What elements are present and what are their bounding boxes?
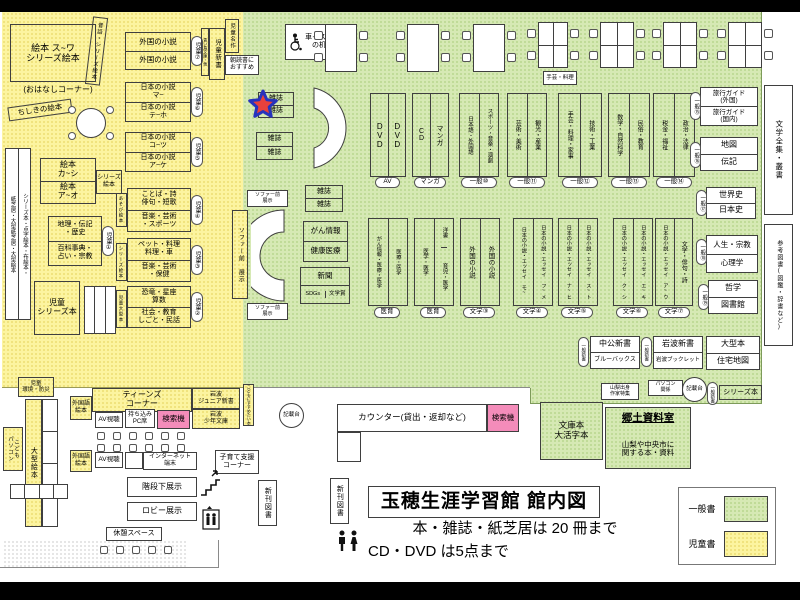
chair [717, 51, 726, 60]
shelf-row: 日本の小説 ア~ケ [126, 152, 190, 172]
chair [161, 432, 169, 440]
shelf-row: SDGs 文学賞 [301, 285, 349, 303]
shelf-kyoryu: 恐竜・星座 算数 社会・教育 しごと・民話 [127, 286, 191, 328]
shelf-bungaku-4: 日本の小説・エッセイ モ~ 日本の小説・エッセイ フ~メ [513, 218, 553, 306]
chair [129, 432, 137, 440]
chair [129, 444, 137, 452]
reading-table [407, 24, 439, 72]
shelf-row: 岩波ブックレット [654, 352, 702, 368]
label-ohanashi-corner: (おはなしコーナー) [6, 84, 110, 96]
sofa-front-display-shelf: ソファー前 展示 [232, 210, 248, 299]
chair [145, 444, 153, 452]
chair [764, 51, 773, 60]
pill-bungaku-5: 文学⑤ [561, 307, 593, 318]
shelf-bungaku-5: 日本の小説・エッセイ ナ~ヒ 日本の小説・エッセイ ス~ト [558, 218, 598, 306]
shelf-ogata-jutaku: 大型本 住宅地図 [706, 336, 760, 370]
shelf-col: 日本の小説・エッセイ ク~シ [614, 219, 633, 305]
shelf-kamishibai-tall: 紙芝居・大型紙芝居・大型絵本 シリーズ本・点字絵本・布絵本・ [5, 148, 31, 320]
chair [699, 51, 708, 60]
shelf-col: CD [413, 94, 430, 176]
shelf-col: 民俗・教育 [629, 94, 650, 176]
shelf-row: 地理・伝記 ・歴史 [49, 217, 101, 241]
shelf-jinsei-shinri: 人生・宗教 心理学 [706, 235, 758, 273]
shelf-kotoba: ことば・詩 俳句・短歌 音楽・芸術 ・スポーツ [127, 188, 191, 232]
pill-ippan-15: 一般⑮ [690, 92, 701, 120]
shelf-row: 外国の小説 [126, 51, 190, 70]
quad-table [728, 22, 762, 68]
shelf-row: ブルーバックス [591, 352, 639, 368]
shelf-bungaku-6: 日本の小説・エッセイ ク~シ 日本の小説・エッセイ エ~キ [613, 218, 653, 306]
shelf-sekaishi-nihonshi: 世界史 日本史 [706, 187, 756, 219]
bench-cell [24, 485, 38, 498]
chair [106, 106, 114, 114]
pill-jido-2: 児童② [191, 292, 203, 322]
legend-label-children: 児童書 [684, 536, 720, 552]
sofa-front-display-bottom: ソファー前 展示 [247, 303, 288, 320]
chair [717, 29, 726, 38]
shelf-col: 外国の小説 [480, 219, 500, 305]
pill-jido-5: 児童⑤ [191, 137, 203, 167]
quad-table [538, 22, 568, 68]
tag-yamanashi-sakka: 山梨出身 作家特集 [601, 383, 639, 400]
tag-pasokon-kankei: パソコン 関係 [648, 380, 683, 396]
shelf-gaikokugo-ehon: 外国語 絵本 [70, 450, 92, 472]
chair [589, 29, 598, 38]
search-machine: 検索機 [487, 404, 519, 432]
chair [652, 51, 661, 60]
chair [396, 31, 405, 40]
shelf-bungaku-3: 外国の小説 外国の小説 [460, 218, 500, 306]
shelf-dvd: DVD DVD [370, 93, 406, 177]
chair [359, 53, 368, 62]
rest-space-floor [3, 540, 187, 568]
shelf-bunkobon: 文庫本 大活字本 [540, 402, 603, 460]
shelf-row: がん情報 [304, 222, 347, 241]
wall-line [0, 567, 219, 568]
quad-table [663, 22, 697, 68]
shelf-row: 伝記 [701, 154, 757, 171]
shelf-iiku-2: 医学・医学 洋書 育児・医学 [414, 218, 454, 306]
pill-bungaku-4: 文学④ [516, 307, 548, 318]
internet-terminal: インターネット 端末 [143, 452, 197, 470]
legend-swatch-children [724, 531, 768, 557]
shelf-zasshi-2: 雑誌 雑誌 [256, 132, 293, 160]
chair [161, 444, 169, 452]
quad-table [600, 22, 634, 68]
shelf-bungaku-zenshu: 文学全集・叢書 [764, 85, 793, 215]
chair [441, 31, 450, 40]
shelf-iwanami-shonen: 岩波 少年文庫 [192, 409, 240, 429]
shelf-row: 日本の小説 マ~ [126, 83, 190, 102]
shelf-col: 文学・俳句・詩 [674, 219, 693, 305]
shelf-col: 日本の小説・エッセイ モ~ [514, 219, 533, 305]
shelf-row: 新聞 [301, 268, 349, 285]
you-are-here-star-icon [246, 88, 280, 122]
shelf-col: 日本の小説・エッセイ エ~キ [633, 219, 653, 305]
chair [441, 53, 450, 62]
shelf-col: 外国の小説 [461, 219, 480, 305]
shelf-col: 医療・医学 [388, 219, 408, 305]
elevator-icon [202, 506, 220, 530]
chair [396, 53, 405, 62]
loan-limit-note-av: CD・DVD は5点まで [368, 541, 578, 563]
shelf-row: 絵本 ア~オ [41, 181, 95, 204]
wall-line [218, 540, 219, 568]
shelf-col [105, 287, 115, 333]
chair [145, 432, 153, 440]
shelf-row: ペット・料理 料理・車 [128, 239, 190, 260]
reading-table [473, 24, 505, 72]
shelf-ippan-10: 日本語・外国語 スポーツ・音楽・演劇 [459, 93, 499, 177]
pill-bungaku-3: 文学③ [463, 307, 495, 318]
pill-ippan-17: 一般⑰ [696, 190, 707, 216]
shelf-iwanami-junior: 岩波 ジュニア新書 [192, 388, 240, 409]
chair [462, 31, 471, 40]
pill-jido-1: 児童① [102, 226, 114, 256]
kids-computer: こども パソコン [3, 427, 23, 471]
shelf-gan-kenko: がん情報 健康医療 [303, 221, 348, 262]
shelf-asadoku-osusume: 朝読書に おすすめ [225, 55, 259, 75]
shelf-col: 数学・自然科学 [609, 94, 629, 176]
shelf-col: 紙芝居・大型紙芝居・大型絵本 [6, 149, 18, 319]
chair [359, 31, 368, 40]
pill-ippan-18: 一般⑱ [696, 239, 707, 265]
chair [570, 51, 579, 60]
floor-map-screen: 絵本 ス~ワ シリーズ絵本 (おはなしコーナー) 昔話・シリーズ絵本 ちしきの絵… [0, 0, 800, 600]
counter-desk: カウンター(貸出・返却など) [337, 404, 487, 432]
writing-stand-circle: 記載台 [279, 403, 304, 428]
pill-bungaku-7: 文学⑦ [658, 307, 690, 318]
shelf-tetsugaku-toshokan: 哲学 図書館 [708, 280, 758, 314]
bench-cell [53, 485, 67, 498]
pill-jido-3: 児童③ [191, 245, 203, 275]
chair [68, 106, 76, 114]
pill-jido-4: 児童④ [191, 195, 203, 225]
shelf-cell [43, 431, 57, 463]
shelf-iiku-1: がん情報・医療・医学 医療・医学 [368, 218, 408, 306]
shelf-row: ことば・詩 俳句・短歌 [128, 189, 190, 210]
shelf-row: 旅行ガイド (外国) [701, 88, 757, 106]
shelf-label: 絵本 ス~ワ シリーズ絵本 [26, 43, 80, 63]
chair [764, 29, 773, 38]
tag-jido-ogata: 児童大型本 [116, 290, 127, 328]
chair [106, 132, 114, 140]
shelf-jido-shinsho: 児童新書 [209, 28, 225, 80]
shelf-bungaku-7: 日本の小説・エッセイ ア~ウ 文学・俳句・詩 [655, 218, 693, 306]
shelf-col: 芸術・美術 [508, 94, 527, 176]
shelf-row: 心理学 [707, 254, 757, 273]
shelf-col [85, 287, 94, 333]
loan-limit-note-books: 本・雑誌・紙芝居は 20 冊まで [380, 518, 650, 540]
shelf-col: シリーズ本・点字絵本・布絵本・ [18, 149, 31, 319]
shelf-ehon-ka-a: 絵本 カ~シ 絵本 ア~オ [40, 158, 96, 204]
pill-ippan-10: 一般⑩ [461, 177, 497, 188]
shelf-col: 技術・工業 [580, 94, 602, 176]
shelf-row: 日本の小説 コ~ツ [126, 133, 190, 152]
shelf-jido-nihon-ko: 日本の小説 コ~ツ 日本の小説 ア~ケ [125, 132, 191, 172]
shelf-col: 日本の小説・エッセイ ナ~ヒ [559, 219, 578, 305]
chair [97, 444, 105, 452]
curved-sofa [313, 86, 349, 170]
shelf-kodomo-susume: こどもにすすめたい本 [243, 384, 254, 426]
av-viewing-seat: AV視聴 [95, 412, 123, 428]
shelf-ippan-12: 手芸・料理・家事 技術・工業 [558, 93, 602, 177]
chair [100, 546, 108, 554]
wheelchair-icon [289, 33, 303, 51]
shelf-col: 観光・産業 [527, 94, 547, 176]
shelf-col: 手芸・料理・家事 [559, 94, 580, 176]
area-edge-line [243, 387, 530, 388]
toilet-icon [335, 530, 361, 552]
rest-space-label: 休憩スペース [106, 527, 162, 541]
shelf-ippan-13: 数学・自然科学 民俗・教育 [608, 93, 650, 177]
bench-cell [39, 485, 53, 498]
stairs-icon [199, 469, 221, 497]
pill-ippan-shinsho: 一般新書 [578, 337, 589, 367]
shelf-col: 日本の小説・エッセイ ア~ウ [656, 219, 674, 305]
shelf-zasshi-3: 雑誌 雑誌 [305, 185, 343, 212]
shelf-shinkan-tosho: 新刊図書 [258, 480, 277, 526]
shelf-white-3col [84, 286, 116, 334]
shelf-row: 中公新書 [591, 337, 639, 352]
pill-manga: マンガ [414, 177, 446, 188]
chair [636, 29, 645, 38]
shelf-jido-kankyo-bosai: 児童 環境・防災 [18, 377, 54, 397]
shelf-row: 図書館 [709, 297, 757, 314]
lobby-display: ロビー展示 [127, 502, 197, 521]
shelf-row: 健康医療 [304, 241, 347, 261]
legend-label-general: 一般書 [684, 501, 720, 517]
chair [636, 51, 645, 60]
round-table [76, 108, 106, 138]
shelf-row: 雑誌 [257, 146, 292, 160]
shelf-col: スポーツ・音楽・演劇 [479, 94, 499, 176]
reading-table [325, 24, 357, 72]
chair [527, 51, 536, 60]
shelf-shinkan-tosho: 新刊図書 [330, 478, 349, 524]
shelf-cd-manga: CD マンガ [412, 93, 449, 177]
chair [507, 31, 516, 40]
shelf-jido-gaikoku: 外国の小説 外国の小説 [125, 32, 191, 70]
chair [699, 29, 708, 38]
chair [177, 432, 185, 440]
shelf-sanko-tosho: 参考図書(図鑑・辞書など) [764, 224, 793, 346]
pill-ippan-13: 一般⑬ [611, 177, 647, 188]
kyodo-room-title: 郷土資料室 [606, 408, 690, 430]
shelf-col [94, 287, 104, 333]
shelf-col-split: 洋書 育児・医学 [434, 219, 454, 305]
shelf-row: 岩波新書 [654, 337, 702, 352]
shelf-row: 雑誌 [257, 133, 292, 146]
shelf-shinbun-sdgs: 新聞 SDGs 文学賞 [300, 267, 350, 304]
chair [527, 29, 536, 38]
shelf-row: 哲学 [709, 281, 757, 297]
pill-jido-6: 児童⑥ [191, 87, 203, 117]
shelf-jido-series: 児童 シリーズ本 [34, 281, 80, 335]
tag-aoitori-bunko: 青い鳥文庫・他 [201, 28, 209, 76]
map-title: 玉穂生涯学習館 館内図 [368, 486, 600, 518]
shelf-col: DVD [371, 94, 388, 176]
shelf-series-hon: シリーズ本 [719, 385, 762, 400]
shelf-row: 百科事典・ 占い・宗教 [49, 241, 101, 266]
shelf-row: 雑誌 [306, 198, 342, 211]
bench-cell [11, 485, 24, 498]
shelf-ogata-ehon: 大型絵本 [25, 399, 42, 527]
chair [113, 432, 121, 440]
legend-swatch-general [724, 496, 768, 522]
shelf-row: 住宅地図 [707, 353, 759, 370]
kyodo-room-subtitle: 山梨や中央市に 関する本・資料 [606, 430, 690, 468]
shelf-row: 雑誌 [306, 186, 342, 198]
chair [507, 53, 516, 62]
shelf-ippan-14: 税金・福祉 政治・法律 [653, 93, 695, 177]
chair [68, 132, 76, 140]
curved-sofa [251, 208, 285, 303]
pill-iiku: 医育 [374, 307, 400, 318]
shelf-cell: SDGs [301, 291, 325, 297]
shelf-chuko-shinsho: 中公新書 ブルーバックス [590, 336, 640, 369]
pill-ippan-16: 一般⑯ [690, 142, 701, 168]
seat-box [125, 452, 143, 469]
chair [570, 29, 579, 38]
shelf-ippan-11: 芸術・美術 観光・産業 [507, 93, 547, 177]
tag-series-ehon: シリーズ 絵本 [96, 170, 122, 194]
shelf-cell [43, 494, 57, 526]
sofa-front-display-top: ソファー前 展示 [247, 190, 288, 207]
pill-ippan-19: 一般⑲ [698, 284, 709, 310]
pill-bungaku-6: 文学⑥ [616, 307, 648, 318]
shelf-chizu-denki: 地図 伝記 [700, 137, 758, 171]
shelf-jido-nihon-ma: 日本の小説 マ~ 日本の小説 テ~ホ [125, 82, 191, 122]
shelf-row: 音楽・芸術 ・保健 [128, 260, 190, 282]
shelf-gaikokugo-ehon: 外国語 絵本 [70, 396, 92, 420]
chair [177, 444, 185, 452]
shelf-chiri-hyakka: 地理・伝記 ・歴史 百科事典・ 占い・宗教 [48, 216, 102, 266]
av-viewing-seat: AV視聴 [95, 452, 123, 468]
shelf-ryoko-guide: 旅行ガイド (外国) 旅行ガイド (国内) [700, 87, 758, 126]
shelf-row: 絵本 カ~シ [41, 159, 95, 181]
shelf-cell: 文学賞 [325, 291, 350, 297]
shelf-iwanami-shinsho: 岩波新書 岩波ブックレット [653, 336, 703, 369]
shelf-col: マンガ [430, 94, 448, 176]
chair [148, 546, 156, 554]
chair [132, 546, 140, 554]
shelf-row: 外国の小説 [126, 33, 190, 51]
tag-asobi-ehon: あそび絵本 [116, 193, 127, 227]
shelf-row: 音楽・芸術 ・スポーツ [128, 210, 190, 232]
shelf-cell: 育児・医学 [441, 247, 447, 305]
chair [164, 546, 172, 554]
shelf-cell: 洋書 [441, 219, 447, 247]
shelf-ehon-su-wa: 絵本 ス~ワ シリーズ絵本 [10, 24, 96, 82]
chair [652, 29, 661, 38]
kyodo-shiryo-room: 郷土資料室 山梨や中央市に 関する本・資料 [605, 407, 691, 469]
chair [113, 444, 121, 452]
shelf-row: 人生・宗教 [707, 236, 757, 254]
shelf-cell [43, 400, 57, 431]
shelf-row: 恐竜・星座 算数 [128, 287, 190, 307]
writing-stand-circle: 記載台 [682, 377, 707, 402]
pill-ippan-11: 一般⑪ [509, 177, 545, 188]
counter-desk-return [337, 432, 361, 462]
shelf-col: 医学・医学 [415, 219, 434, 305]
chair [116, 546, 124, 554]
chair [314, 31, 323, 40]
shelf-row: 日本の小説 テ~ホ [126, 102, 190, 122]
shelf-col: がん情報・医療・医学 [369, 219, 388, 305]
tag-series-ehon-2: シリーズ絵本 [116, 243, 127, 281]
byo-pc-seat: 持ち込み PC席 [125, 409, 155, 428]
shelf-row: 地図 [701, 138, 757, 154]
tag-shugei-ryori: 手芸・料理 [543, 71, 577, 85]
pill-ippan-14: 一般⑭ [656, 177, 692, 188]
shelf-row: 旅行ガイド (国内) [701, 106, 757, 125]
shelf-row: 日本史 [707, 203, 755, 219]
chair [97, 432, 105, 440]
lobby-bench [10, 484, 68, 499]
pill-ippan-12: 一般⑫ [562, 177, 598, 188]
under-stairs-display: 階段下展示 [127, 477, 197, 497]
shelf-row: 世界史 [707, 188, 755, 203]
chair [462, 53, 471, 62]
pill-ippan-shinsho: 一般新書 [707, 382, 718, 405]
childcare-support-corner: 子育て支援 コーナー [215, 450, 259, 474]
pill-av: AV [375, 177, 400, 188]
chair [589, 51, 598, 60]
search-machine: 検索機 [157, 410, 190, 429]
shelf-col: 日本の小説・エッセイ フ~メ [533, 219, 553, 305]
pill-iiku: 医育 [420, 307, 446, 318]
shelf-white-column [42, 399, 58, 527]
shelf-col: 日本語・外国語 [460, 94, 479, 176]
shelf-col: 日本の小説・エッセイ ス~ト [578, 219, 598, 305]
shelf-jido-meisaku: 児童名作 [225, 19, 239, 53]
shelf-col: 税金・福祉 [654, 94, 674, 176]
pill-ippan-shinsho: 一般新書 [641, 337, 652, 367]
shelf-pet-ryori: ペット・料理 料理・車 音楽・芸術 ・保健 [127, 238, 191, 282]
shelf-row: 大型本 [707, 337, 759, 353]
chair [314, 53, 323, 62]
shelf-col: DVD [388, 94, 406, 176]
shelf-row: 社会・教育 しごと・民話 [128, 307, 190, 328]
